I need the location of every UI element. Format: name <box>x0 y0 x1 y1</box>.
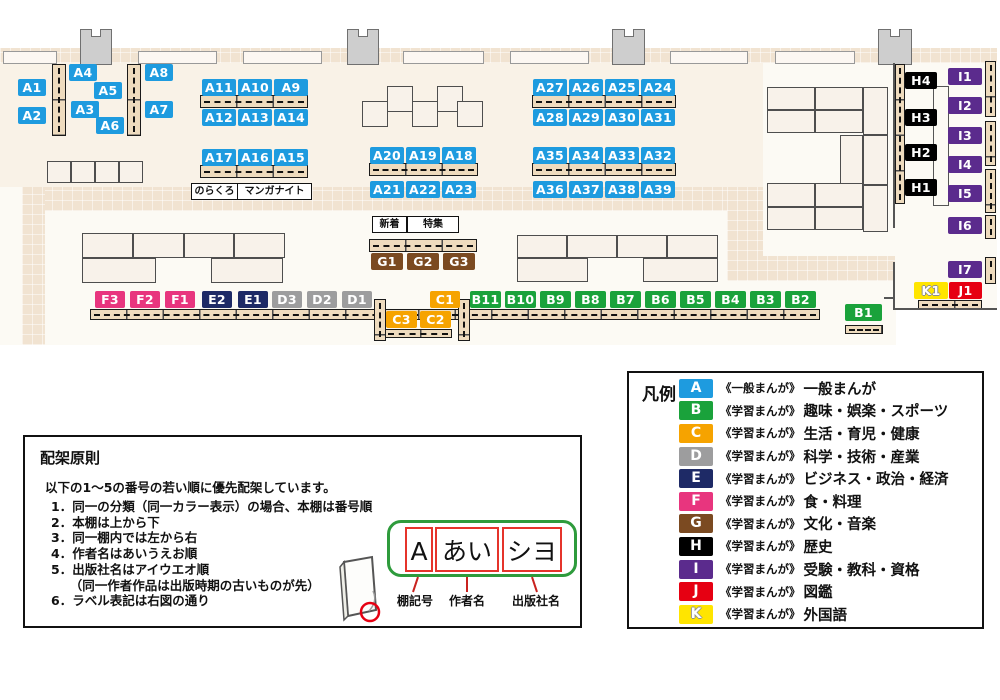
legend-row-A: A《一般まんが》一般まんが <box>679 377 949 400</box>
shelf-label-B8: B8 <box>575 291 606 308</box>
shelf-label-B7: B7 <box>610 291 641 308</box>
table-shelf <box>815 87 863 110</box>
bookshelf-row <box>532 163 676 176</box>
shelf-label-B6: B6 <box>645 291 676 308</box>
table-shelf <box>517 258 588 282</box>
pillar-notch <box>91 29 101 37</box>
shelf-label-E1: E1 <box>238 291 268 308</box>
legend-row-D: D《学習まんが》科学・技術・産業 <box>679 445 949 468</box>
window <box>243 51 322 64</box>
shelf-label-J1: J1 <box>949 282 982 299</box>
legend-series-label: 《学習まんが》 <box>720 516 801 532</box>
shelf-label-A3: A3 <box>71 101 99 118</box>
shelf-label-F3: F3 <box>95 291 125 308</box>
bookshelf-row <box>369 239 477 252</box>
table-shelf <box>617 235 667 258</box>
shelf-label-F1: F1 <box>165 291 195 308</box>
table-shelf <box>211 258 283 283</box>
table-shelf <box>234 233 285 258</box>
bookshelf-column <box>985 121 996 166</box>
bookshelf-column <box>895 64 905 204</box>
table-shelf <box>362 101 388 127</box>
legend-chip-E: E <box>679 469 713 488</box>
shelf-label-B9: B9 <box>540 291 571 308</box>
shelf-label-H4: H4 <box>905 72 937 89</box>
shelf-label-A26: A26 <box>569 79 603 96</box>
shelf-label-G1: G1 <box>371 253 403 270</box>
legend-chip-C: C <box>679 424 713 443</box>
legend-series-label: 《学習まんが》 <box>720 538 801 554</box>
shelf-label-H3: H3 <box>905 109 937 126</box>
shelf-label-I6: I6 <box>948 217 982 234</box>
pillar <box>80 29 112 65</box>
shelf-label-H2: H2 <box>905 144 937 161</box>
table-shelf <box>815 110 863 133</box>
legend-category-label: 趣味・娯楽・スポーツ <box>804 400 949 421</box>
legend-category-label: 図鑑 <box>804 581 833 602</box>
floor-map: A1A2A4A3A5A6A8A7A11A10A9A12A13A14A17A16A… <box>0 0 1000 352</box>
bookshelf-column <box>374 299 386 341</box>
legend-chip-J: J <box>679 582 713 601</box>
legend-row-C: C《学習まんが》生活・育児・健康 <box>679 422 949 445</box>
label-part-caption: 出版社名 <box>512 592 560 609</box>
map-annotation: マンガナイト <box>237 183 312 200</box>
table-shelf <box>863 185 888 232</box>
shelf-label-A37: A37 <box>569 181 603 198</box>
table-shelf <box>95 161 119 183</box>
bookshelf-column <box>985 169 996 213</box>
table-shelf <box>767 207 815 230</box>
table-shelf <box>82 258 156 283</box>
shelf-label-G3: G3 <box>443 253 475 270</box>
shelf-label-A24: A24 <box>641 79 675 96</box>
shelf-label-A7: A7 <box>145 101 173 118</box>
table-shelf <box>47 161 71 183</box>
shelf-label-A6: A6 <box>96 117 124 134</box>
label-part: A <box>405 527 433 572</box>
table-shelf <box>767 87 815 110</box>
shelf-label-B2: B2 <box>785 291 816 308</box>
legend-series-label: 《学習まんが》 <box>720 425 801 441</box>
shelf-label-D3: D3 <box>272 291 302 308</box>
legend-series-label: 《学習まんが》 <box>720 584 801 600</box>
table-shelf <box>815 183 863 207</box>
shelf-label-A36: A36 <box>533 181 567 198</box>
shelf-label-A2: A2 <box>18 107 46 124</box>
caption-connectors <box>387 576 577 593</box>
shelf-label-G2: G2 <box>407 253 439 270</box>
bookshelf-column <box>985 215 996 239</box>
legend-series-label: 《一般まんが》 <box>720 380 801 396</box>
shelf-label-A16: A16 <box>238 149 272 166</box>
shelf-label-A25: A25 <box>605 79 639 96</box>
spine-label-example: Aあいシヨ 棚記号作者名出版社名 <box>325 517 581 628</box>
shelf-label-B4: B4 <box>715 291 746 308</box>
bookshelf-column <box>985 61 996 117</box>
bookshelf-column <box>52 64 66 136</box>
legend-chip-B: B <box>679 401 713 420</box>
wall <box>884 297 895 299</box>
wall <box>893 308 997 310</box>
table-shelf <box>567 235 617 258</box>
table-shelf <box>119 161 143 183</box>
legend-category-label: 食・料理 <box>804 491 862 512</box>
table-shelf <box>457 101 483 127</box>
table-shelf <box>863 87 888 135</box>
shelf-label-A13: A13 <box>238 109 272 126</box>
legend-row-B: B《学習まんが》趣味・娯楽・スポーツ <box>679 400 949 423</box>
window <box>510 51 589 64</box>
bookshelf-row <box>384 329 452 338</box>
legend-chip-D: D <box>679 447 713 466</box>
window <box>3 51 57 64</box>
table-shelf <box>767 183 815 207</box>
pillar-notch <box>890 29 900 37</box>
legend-rows: A《一般まんが》一般まんがB《学習まんが》趣味・娯楽・スポーツC《学習まんが》生… <box>679 377 949 626</box>
legend-row-F: F《学習まんが》食・料理 <box>679 490 949 513</box>
legend-title: 凡例 <box>642 380 676 405</box>
shelf-label-B5: B5 <box>680 291 711 308</box>
shelf-label-A19: A19 <box>406 147 440 164</box>
window <box>775 51 855 64</box>
shelf-label-A38: A38 <box>605 181 639 198</box>
walkway <box>727 256 895 281</box>
shelf-label-A1: A1 <box>18 79 46 96</box>
shelf-label-D2: D2 <box>307 291 337 308</box>
shelf-label-I5: I5 <box>948 185 982 202</box>
shelf-label-I4: I4 <box>948 156 982 173</box>
shelf-label-A9: A9 <box>274 79 308 96</box>
page: { "map": { "categories": { "A": {"color"… <box>0 0 1000 700</box>
legend-row-E: E《学習まんが》ビジネス・政治・経済 <box>679 467 949 490</box>
shelf-label-A30: A30 <box>605 109 639 126</box>
shelf-label-C1: C1 <box>430 291 460 308</box>
shelf-label-A28: A28 <box>533 109 567 126</box>
table-shelf <box>863 135 888 185</box>
legend-category-label: 科学・技術・産業 <box>804 446 920 467</box>
label-part: あい <box>435 527 499 572</box>
legend-category-label: 歴史 <box>804 536 833 557</box>
legend-row-H: H《学習まんが》歴史 <box>679 535 949 558</box>
principles-intro: 以下の1～5の番号の若い順に優先配架しています。 <box>45 477 336 496</box>
shelf-label-A22: A22 <box>406 181 440 198</box>
shelf-label-B11: B11 <box>470 291 501 308</box>
shelf-label-A20: A20 <box>370 147 404 164</box>
bookshelf-row <box>532 95 676 108</box>
table-shelf <box>184 233 234 258</box>
bookshelf-row <box>369 163 478 176</box>
table-shelf <box>767 110 815 133</box>
legend-panel: 凡例 A《一般まんが》一般まんがB《学習まんが》趣味・娯楽・スポーツC《学習まん… <box>627 371 984 629</box>
shelf-label-B3: B3 <box>750 291 781 308</box>
floor-edge-mask <box>896 310 1000 352</box>
legend-row-I: I《学習まんが》受験・教科・資格 <box>679 558 949 581</box>
shelf-label-A23: A23 <box>442 181 476 198</box>
shelf-label-A27: A27 <box>533 79 567 96</box>
legend-series-label: 《学習まんが》 <box>720 403 801 419</box>
shelf-label-A14: A14 <box>274 109 308 126</box>
legend-category-label: 受験・教科・資格 <box>804 559 920 580</box>
map-annotation: 新着 <box>372 216 407 233</box>
shelf-label-A32: A32 <box>641 147 675 164</box>
table-shelf <box>643 258 718 282</box>
table-shelf <box>412 101 438 127</box>
table-shelf <box>71 161 95 183</box>
shelf-label-A15: A15 <box>274 149 308 166</box>
legend-series-label: 《学習まんが》 <box>720 606 801 622</box>
shelf-label-A17: A17 <box>202 149 236 166</box>
shelf-label-A21: A21 <box>370 181 404 198</box>
legend-chip-A: A <box>679 379 713 398</box>
table-shelf <box>667 235 718 258</box>
shelf-label-E2: E2 <box>202 291 232 308</box>
table-shelf <box>517 235 567 258</box>
shelf-label-I7: I7 <box>948 261 982 278</box>
shelf-label-A18: A18 <box>442 147 476 164</box>
legend-category-label: 一般まんが <box>804 378 877 399</box>
shelf-label-A39: A39 <box>641 181 675 198</box>
pillar-notch <box>358 29 368 37</box>
shelf-label-K1: K1 <box>914 282 948 299</box>
bookshelf-row <box>200 165 308 178</box>
shelf-label-A12: A12 <box>202 109 236 126</box>
legend-chip-F: F <box>679 492 713 511</box>
bookshelf-row <box>90 309 820 320</box>
shelf-label-A31: A31 <box>641 109 675 126</box>
legend-category-label: 文化・音楽 <box>804 513 877 534</box>
shelf-label-A33: A33 <box>605 147 639 164</box>
label-part-caption: 棚記号 <box>397 592 433 609</box>
legend-series-label: 《学習まんが》 <box>720 448 801 464</box>
legend-chip-G: G <box>679 514 713 533</box>
principles-title: 配架原則 <box>40 447 100 468</box>
map-annotation: 特集 <box>407 216 459 233</box>
shelf-label-I2: I2 <box>948 97 982 114</box>
shelf-label-B10: B10 <box>505 291 536 308</box>
window <box>403 51 484 64</box>
legend-category-label: 生活・育児・健康 <box>804 423 920 444</box>
bookshelf-row <box>200 95 308 108</box>
pillar <box>347 29 379 65</box>
legend-series-label: 《学習まんが》 <box>720 493 801 509</box>
legend-series-label: 《学習まんが》 <box>720 561 801 577</box>
shelf-label-B1: B1 <box>845 304 882 321</box>
bookshelf-column <box>127 64 141 136</box>
shelf-label-A4: A4 <box>69 64 97 81</box>
principles-panel: 配架原則 以下の1～5の番号の若い順に優先配架しています。 1．同一の分類（同一… <box>23 435 582 628</box>
shelf-label-A35: A35 <box>533 147 567 164</box>
book-illustration <box>329 553 384 625</box>
legend-category-label: 外国語 <box>804 604 848 625</box>
table-shelf <box>387 86 413 112</box>
shelf-label-A8: A8 <box>145 64 173 81</box>
shelf-label-H1: H1 <box>905 179 937 196</box>
legend-chip-K: K <box>679 605 713 624</box>
legend-row-G: G《学習まんが》文化・音楽 <box>679 513 949 536</box>
bookshelf-row <box>845 325 883 334</box>
principle-item: 1．同一の分類（同一カラー表示）の場合、本棚は番号順 <box>51 499 372 515</box>
label-outline: Aあいシヨ <box>387 520 577 577</box>
shelf-label-A34: A34 <box>569 147 603 164</box>
label-part-caption: 作者名 <box>449 592 485 609</box>
legend-series-label: 《学習まんが》 <box>720 471 801 487</box>
window <box>670 51 748 64</box>
bookshelf-column <box>985 257 996 284</box>
shelf-label-I1: I1 <box>948 68 982 85</box>
table-shelf <box>815 207 863 230</box>
shelf-label-F2: F2 <box>130 291 160 308</box>
shelf-label-A29: A29 <box>569 109 603 126</box>
shelf-label-A10: A10 <box>238 79 272 96</box>
shelf-label-D1: D1 <box>342 291 372 308</box>
shelf-label-A5: A5 <box>94 82 122 99</box>
legend-chip-H: H <box>679 537 713 556</box>
legend-chip-I: I <box>679 560 713 579</box>
shelf-label-I3: I3 <box>948 127 982 144</box>
legend-row-J: J《学習まんが》図鑑 <box>679 580 949 603</box>
pillar <box>612 29 645 65</box>
table-shelf <box>82 233 133 258</box>
window <box>138 51 217 64</box>
pillar <box>878 29 912 65</box>
table-shelf <box>840 135 863 185</box>
label-part: シヨ <box>502 527 562 572</box>
shelf-label-C2: C2 <box>420 311 451 328</box>
walkway <box>22 187 45 345</box>
wall <box>893 63 895 228</box>
table-shelf <box>133 233 184 258</box>
wall <box>893 262 895 309</box>
legend-row-K: K《学習まんが》外国語 <box>679 603 949 626</box>
shelf-label-C3: C3 <box>386 311 417 328</box>
legend-category-label: ビジネス・政治・経済 <box>804 468 949 489</box>
pillar-notch <box>624 29 634 37</box>
map-annotation: のらくろ <box>191 183 238 200</box>
shelf-label-A11: A11 <box>202 79 236 96</box>
